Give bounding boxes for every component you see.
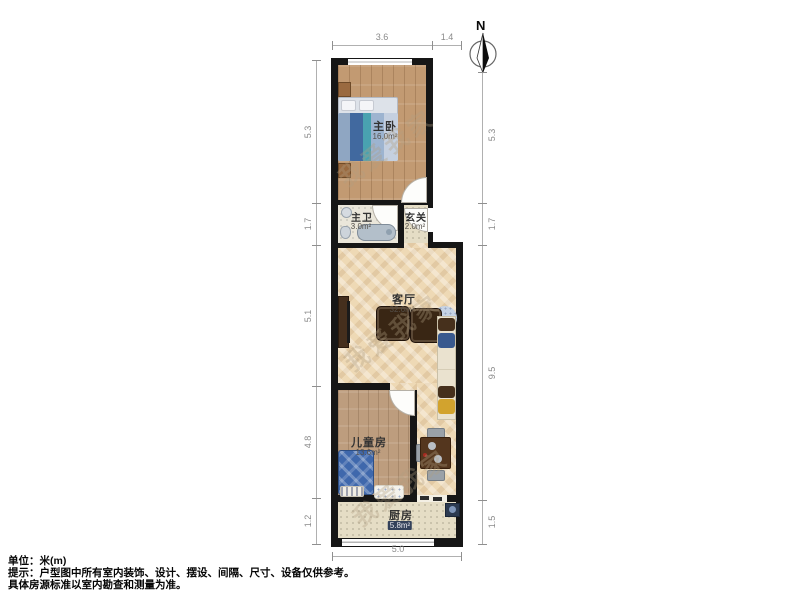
dim-tick [461, 552, 462, 561]
dim-tick [478, 72, 487, 73]
dim-line-right [482, 72, 483, 545]
dim-tick [432, 41, 433, 50]
nightstand-bottom [338, 163, 351, 178]
bed-pillow-1 [341, 100, 356, 111]
bathtub-drain [386, 229, 392, 235]
dim-right-4: 1.5 [487, 516, 497, 529]
kitchen-window [342, 539, 434, 546]
plate-1 [428, 442, 436, 450]
dim-line-bottom [332, 556, 462, 557]
plate-2 [434, 455, 442, 463]
sofa-pillow-brown-bottom [438, 386, 455, 398]
dim-top-2: 1.4 [441, 32, 454, 42]
dim-top-1: 3.6 [376, 32, 389, 42]
dim-line-top [332, 45, 462, 46]
footer-tip-line2: 具体房源标准以室内勘查和测量为准。 [8, 580, 187, 592]
sofa-pillow-yellow [438, 399, 455, 414]
kids-pillow [340, 486, 364, 497]
dim-right-1: 5.3 [487, 129, 497, 142]
dim-tick [478, 245, 487, 246]
dim-tick [332, 41, 333, 50]
dim-tick [312, 386, 321, 387]
label-entry: 玄关 [405, 209, 427, 224]
sofa-pillow-brown-top [438, 318, 455, 331]
dim-tick [478, 500, 487, 501]
toilet [340, 226, 351, 239]
dim-tick [332, 552, 333, 561]
dim-tick [312, 245, 321, 246]
tv-screen [347, 301, 350, 343]
entry-door-opening [428, 208, 433, 232]
label-master-bath: 主卫 [351, 209, 373, 224]
bedroom-window [348, 59, 412, 65]
floorplan-image: 主卧 16.0m² 主卫 3.0m² 玄关 2.0m² 客厅 32.6m² 儿童… [0, 0, 800, 600]
dim-left-3: 5.1 [303, 310, 313, 323]
dim-right-2: 1.7 [487, 218, 497, 231]
kids-rug [374, 485, 404, 499]
dim-tick [312, 203, 321, 204]
kids-room-door-gap [390, 383, 417, 390]
footer-unit-line: 单位：米(m) [8, 556, 66, 568]
compass-north-label: N [476, 18, 485, 33]
footer-tip-line1: 提示：户型图中所有室内装饰、设计、摆设、间隔、尺寸、设备仅供参考。 [8, 568, 355, 580]
kitchen-door-slide-left [420, 496, 429, 500]
stove-burner [449, 506, 456, 513]
dim-left-5: 1.2 [303, 515, 313, 528]
dim-tick [312, 544, 321, 545]
label-living-room: 客厅 [392, 291, 416, 307]
dim-tick [312, 498, 321, 499]
label-master-bedroom: 主卧 [373, 118, 397, 134]
dim-tick [312, 60, 321, 61]
bed-pillow-2 [359, 100, 374, 111]
kitchen-door-slide-right [433, 497, 442, 501]
sofa-pillow-blue [438, 333, 455, 348]
dim-left-1: 5.3 [303, 126, 313, 139]
dining-chair-bottom [427, 470, 445, 481]
dim-tick [461, 41, 462, 50]
dim-right-3: 9.5 [487, 367, 497, 380]
dim-tick [478, 544, 487, 545]
dim-tick [478, 203, 487, 204]
red-dish [423, 453, 427, 457]
compass-icon [466, 30, 500, 76]
nightstand-top [338, 82, 351, 97]
dim-left-4: 4.8 [303, 436, 313, 449]
label-kitchen: 厨房 [389, 507, 413, 523]
dim-line-left [316, 60, 317, 545]
label-kids-room: 儿童房 [351, 434, 387, 450]
dim-bottom-1: 5.0 [392, 544, 405, 554]
dim-left-2: 1.7 [303, 218, 313, 231]
